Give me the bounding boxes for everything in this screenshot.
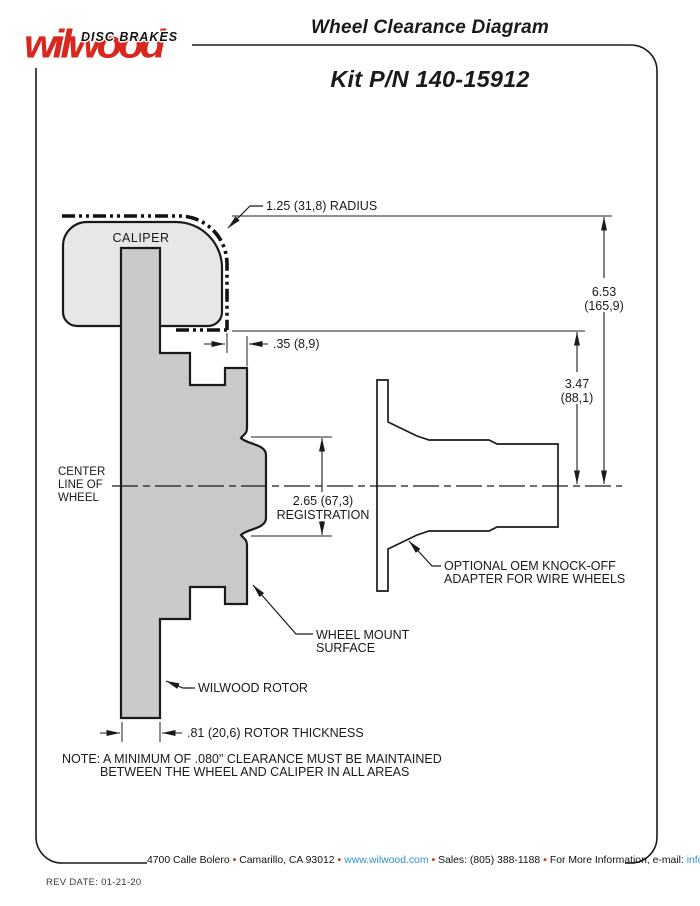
leader-wheel-mount (253, 585, 313, 634)
adapter-label-1: OPTIONAL OEM KNOCK-OFF (444, 559, 616, 573)
footer-more-info: For More Information, e-mail: (550, 855, 684, 866)
brand-tagline: DISC BRAKES (81, 30, 178, 44)
email-link[interactable]: info@wilwood.com (687, 855, 700, 866)
adapter-label-2: ADAPTER FOR WIRE WHEELS (444, 572, 625, 586)
registration-value: 2.65 (67,3) (293, 494, 353, 508)
note-line-1: NOTE: A MINIMUM OF .080" CLEARANCE MUST … (62, 752, 442, 766)
dim-653-mm: (165,9) (584, 299, 624, 313)
rev-date: REV DATE: 01-21-20 (46, 877, 142, 888)
rotor-thickness-label: .81 (20,6) ROTOR THICKNESS (187, 726, 364, 740)
footer-separator: • (429, 855, 439, 866)
clearance-diagram: CALIPER 1.25 (31,8) RADIUS .35 (8,9) 6.5… (0, 0, 700, 906)
footer-separator: • (335, 855, 345, 866)
offset-dim-label: .35 (8,9) (273, 337, 320, 351)
page: wilwood DISC BRAKES Wheel Clearance Diag… (0, 0, 700, 906)
footer-address: 4700 Calle Bolero (147, 855, 230, 866)
centerline-label-2: LINE OF (58, 479, 103, 491)
registration-label: REGISTRATION (277, 508, 370, 522)
note-line-2: BETWEEN THE WHEEL AND CALIPER IN ALL ARE… (100, 765, 409, 779)
footer-contact-line: 4700 Calle Bolero•Camarillo, CA 93012•ww… (147, 855, 627, 866)
footer-city: Camarillo, CA 93012 (239, 855, 334, 866)
leader-rotor (166, 681, 195, 688)
dim-347-inches: 3.47 (565, 377, 589, 391)
leader-radius (228, 206, 263, 228)
dim-653-inches: 6.53 (592, 285, 616, 299)
leader-adapter (409, 541, 441, 566)
centerline-label-1: CENTER (58, 466, 105, 478)
rotor-label: WILWOOD ROTOR (198, 681, 308, 695)
wheel-mount-label-1: WHEEL MOUNT (316, 628, 410, 642)
footer-sales: Sales: (805) 388-1188 (438, 855, 540, 866)
dim-347-mm: (88,1) (561, 391, 594, 405)
wheel-mount-label-2: SURFACE (316, 641, 375, 655)
website-link[interactable]: www.wilwood.com (344, 855, 428, 866)
centerline-label-3: WHEEL (58, 492, 100, 504)
footer-separator: • (540, 855, 550, 866)
caliper-label: CALIPER (113, 231, 170, 245)
radius-label: 1.25 (31,8) RADIUS (266, 199, 377, 213)
footer-separator: • (230, 855, 240, 866)
